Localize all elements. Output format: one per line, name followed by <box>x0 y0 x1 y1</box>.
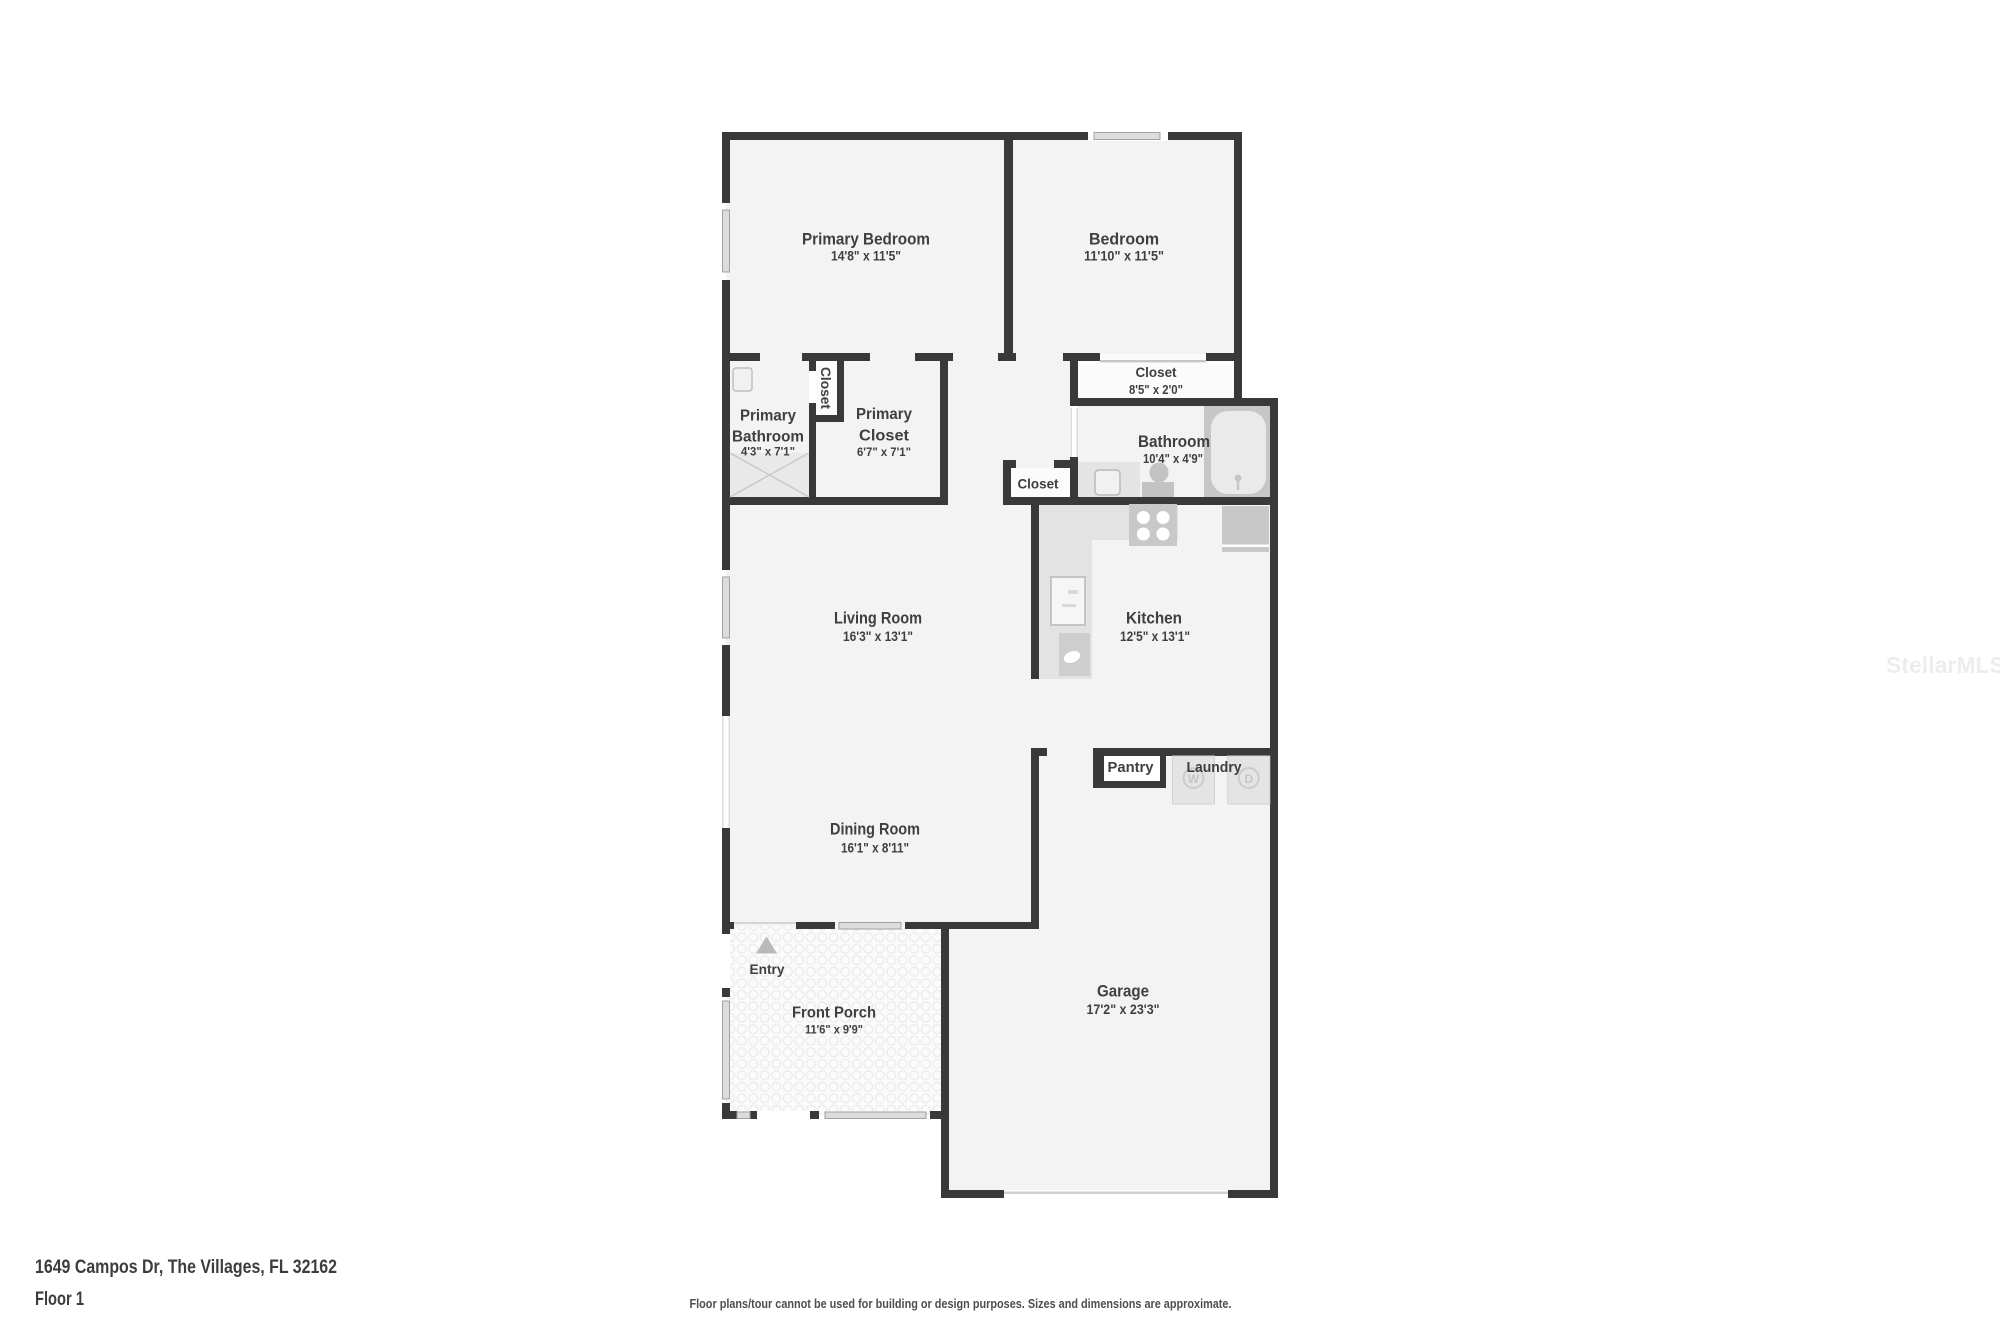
svg-text:Closet: Closet <box>1136 364 1177 380</box>
svg-text:Living Room: Living Room <box>834 609 922 628</box>
svg-text:16'3" x 13'1": 16'3" x 13'1" <box>843 629 913 644</box>
svg-text:1649 Campos Dr, The Villages,: 1649 Campos Dr, The Villages, FL 32162 <box>35 1256 337 1278</box>
svg-text:Laundry: Laundry <box>1187 760 1242 776</box>
svg-text:12'5" x 13'1": 12'5" x 13'1" <box>1120 629 1190 644</box>
svg-text:Entry: Entry <box>750 962 785 977</box>
svg-text:Primary: Primary <box>740 408 796 425</box>
svg-text:11'6" x 9'9": 11'6" x 9'9" <box>805 1023 863 1037</box>
svg-text:Bathroom: Bathroom <box>1138 432 1210 451</box>
svg-text:Floor 1: Floor 1 <box>35 1288 84 1310</box>
svg-text:14'8" x 11'5": 14'8" x 11'5" <box>831 249 901 264</box>
svg-text:Primary: Primary <box>856 406 912 423</box>
svg-text:Primary Bedroom: Primary Bedroom <box>802 230 930 249</box>
svg-text:4'3" x 7'1": 4'3" x 7'1" <box>741 447 795 459</box>
svg-text:Kitchen: Kitchen <box>1126 609 1182 628</box>
svg-text:16'1" x 8'11": 16'1" x 8'11" <box>841 841 909 856</box>
svg-text:Dining Room: Dining Room <box>830 820 920 839</box>
svg-text:Closet: Closet <box>859 428 909 445</box>
svg-text:D: D <box>1244 772 1253 786</box>
svg-text:6'7" x 7'1": 6'7" x 7'1" <box>857 447 911 459</box>
svg-text:Bathroom: Bathroom <box>732 429 804 446</box>
svg-text:10'4" x 4'9": 10'4" x 4'9" <box>1143 452 1203 466</box>
svg-text:17'2" x 23'3": 17'2" x 23'3" <box>1087 1002 1160 1017</box>
svg-text:8'5" x 2'0": 8'5" x 2'0" <box>1129 383 1183 397</box>
svg-text:Front Porch: Front Porch <box>792 1005 876 1022</box>
svg-text:Bedroom: Bedroom <box>1089 230 1159 249</box>
svg-text:Closet: Closet <box>818 367 834 409</box>
svg-text:Pantry: Pantry <box>1108 760 1154 776</box>
svg-text:StellarMLS: StellarMLS <box>1886 652 2000 678</box>
svg-text:Closet: Closet <box>1018 476 1059 492</box>
svg-text:Floor plans/tour cannot be use: Floor plans/tour cannot be used for buil… <box>690 1296 1232 1311</box>
svg-text:Garage: Garage <box>1097 982 1149 1001</box>
svg-text:11'10" x 11'5": 11'10" x 11'5" <box>1084 249 1164 264</box>
